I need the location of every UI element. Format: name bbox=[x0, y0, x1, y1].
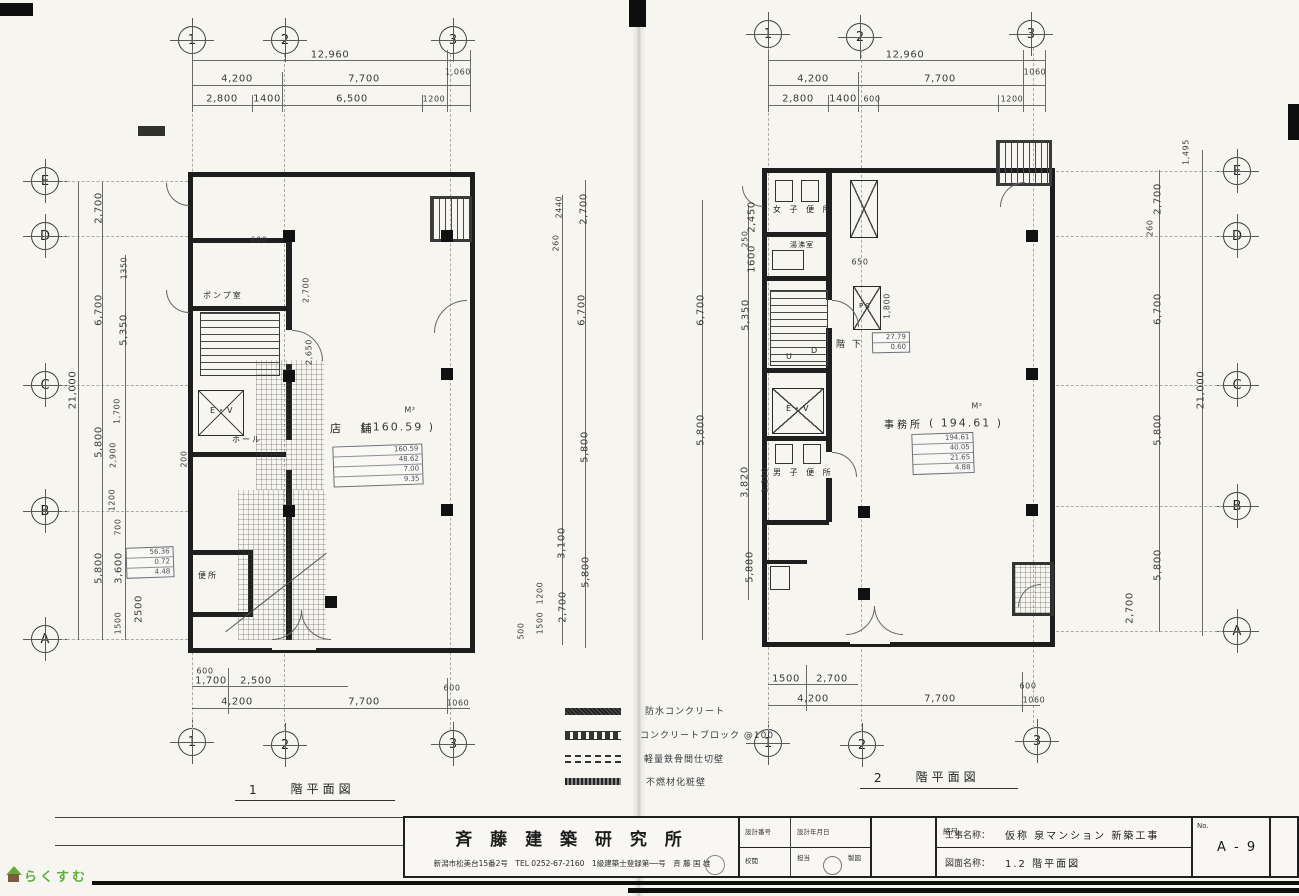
dim: 21,000 bbox=[68, 371, 79, 410]
tb-row-divider bbox=[935, 847, 1191, 848]
dim: 1400 bbox=[253, 94, 281, 105]
fixture bbox=[801, 180, 819, 202]
dim: 650 bbox=[851, 258, 868, 267]
grid-row-bubble: D bbox=[1223, 222, 1251, 250]
plan2-calc-note: 194.61 40.05 21.65 4.88 bbox=[911, 432, 974, 475]
plan1-room-hall: ホール bbox=[232, 434, 262, 445]
fixture bbox=[772, 250, 804, 270]
grid-col-bubble: 2 bbox=[271, 26, 299, 54]
dim: 2,900 bbox=[109, 442, 118, 468]
grid-col-bubble: 3 bbox=[1023, 727, 1051, 755]
dim: 5,800 bbox=[696, 414, 707, 446]
axis-line bbox=[62, 181, 188, 182]
dim: 5,800 bbox=[580, 431, 591, 463]
dim-line bbox=[125, 255, 126, 640]
tb-row-divider bbox=[738, 847, 870, 848]
column bbox=[441, 504, 453, 516]
plan1-room-pump: ポンプ室 bbox=[203, 290, 243, 301]
scan-bottom-line bbox=[92, 881, 1299, 885]
dim: 4,200 bbox=[221, 697, 253, 708]
column bbox=[325, 596, 337, 608]
column bbox=[1026, 368, 1038, 380]
plan2-caption: 2 階平面図 bbox=[860, 768, 1018, 789]
legend-label: コンクリートブロック @100 bbox=[640, 728, 774, 741]
grid-row-bubble: A bbox=[1223, 617, 1251, 645]
dim: 12,960 bbox=[886, 50, 925, 61]
dim: 1500 bbox=[536, 612, 545, 635]
scanned-floor-plan-sheet: らくすむ 1 2 3 1 2 3 1 2 3 1 2 3 E D C B A E… bbox=[0, 0, 1299, 896]
scan-mark bbox=[629, 0, 646, 27]
dim: 1200 bbox=[108, 489, 117, 512]
dim-line bbox=[192, 105, 470, 106]
calc-line: 4.48 bbox=[127, 567, 173, 578]
column bbox=[441, 230, 453, 242]
grid-col-bubble: 2 bbox=[846, 23, 874, 51]
charge-label: 担当 bbox=[797, 852, 810, 862]
dim: 7,700 bbox=[348, 74, 380, 85]
dim: 6,500 bbox=[336, 94, 368, 105]
column bbox=[1026, 230, 1038, 242]
dim: 600 bbox=[443, 684, 460, 693]
plan2-caption-no: 2 bbox=[874, 771, 886, 785]
grid-row-bubble: E bbox=[1223, 157, 1251, 185]
dim: 600 bbox=[250, 236, 267, 245]
dim: 1200 bbox=[1001, 95, 1024, 104]
dim: 5,350 bbox=[741, 299, 752, 331]
grid-row-bubble: C bbox=[1223, 371, 1251, 399]
legend-label: 不燃材化粧壁 bbox=[646, 775, 706, 788]
grid-row-bubble: D bbox=[31, 222, 59, 250]
column bbox=[1026, 504, 1038, 516]
legend-swatch-block bbox=[565, 731, 621, 740]
dim: 5,350 bbox=[119, 314, 130, 346]
dim: 1200 bbox=[423, 95, 446, 104]
tb-divider bbox=[1269, 818, 1271, 876]
dim: 2,700 bbox=[579, 193, 590, 225]
plan1-entrance-gap bbox=[272, 640, 316, 650]
dim: 1,495 bbox=[1182, 139, 1191, 165]
dim: 21,000 bbox=[1196, 371, 1207, 410]
grid-col-bubble: 1 bbox=[754, 20, 782, 48]
dim: 2,700 bbox=[302, 277, 311, 303]
grid-col-bubble: 2 bbox=[271, 731, 299, 759]
scan-mark bbox=[1288, 104, 1299, 140]
column bbox=[283, 230, 295, 242]
dim: 7,700 bbox=[924, 74, 956, 85]
dim: 2,700 bbox=[1125, 592, 1136, 624]
door-arc bbox=[166, 183, 189, 206]
dim: 3,820 bbox=[740, 466, 751, 498]
project-name: 仮称 泉マンション 新築工事 bbox=[1005, 827, 1159, 842]
plan2-roof-stair bbox=[996, 140, 1052, 186]
dim: 1060 bbox=[447, 699, 470, 708]
plan2-wall bbox=[767, 232, 829, 237]
dim-line bbox=[858, 72, 859, 112]
plan1-area-unit: M² bbox=[404, 406, 415, 415]
plan2-office-area: ( 194.61 ) bbox=[929, 417, 1003, 430]
dim: 1,700 bbox=[195, 676, 227, 687]
dim-line bbox=[562, 195, 563, 645]
dim: 5,800 bbox=[581, 556, 592, 588]
dim: 2,500 bbox=[240, 676, 272, 687]
dim: 2,800 bbox=[782, 94, 814, 105]
dim-line bbox=[768, 105, 1045, 106]
plan2-stairs bbox=[770, 290, 828, 366]
plan2-ps-label: PS bbox=[859, 302, 872, 310]
axis-line bbox=[1056, 171, 1222, 172]
dim: 5,800 bbox=[94, 426, 105, 458]
plan2-stair-note: 27.79 0.60 bbox=[872, 332, 910, 354]
grid-row-bubble: B bbox=[1223, 492, 1251, 520]
dim-line bbox=[282, 72, 283, 112]
grid-col-bubble: 3 bbox=[439, 26, 467, 54]
plan2-shaft bbox=[850, 180, 878, 238]
plan2-stair-up: U bbox=[786, 352, 794, 361]
dim-line bbox=[78, 182, 79, 640]
dim: 4,200 bbox=[797, 74, 829, 85]
plan2-wall bbox=[767, 520, 829, 525]
grid-row-bubble: B bbox=[31, 497, 59, 525]
design-no-label: 設計番号 bbox=[745, 826, 771, 836]
dim: 3,600 bbox=[114, 552, 125, 584]
firm-address: 新潟市松美台15番2号 TEL 0252-67-2160 1級建築士登録第──号… bbox=[409, 858, 735, 869]
fixture bbox=[803, 444, 821, 464]
title-strip-line bbox=[55, 845, 403, 846]
column bbox=[283, 370, 295, 382]
grid-col-bubble: 3 bbox=[1017, 20, 1045, 48]
dim: 600 bbox=[1019, 682, 1036, 691]
dim: 1600 bbox=[747, 245, 758, 273]
axis-line bbox=[1056, 506, 1222, 507]
legend-label: 軽量鉄骨間仕切壁 bbox=[644, 752, 724, 765]
dim: 2,700 bbox=[558, 591, 569, 623]
dim: 600 bbox=[196, 667, 213, 676]
plan2-room-ev: E・V bbox=[786, 403, 811, 414]
drawing-name: 1.2 階平面図 bbox=[1005, 855, 1080, 870]
scan-bottom-line bbox=[628, 888, 1299, 893]
calc-line: 27.79 bbox=[873, 333, 909, 344]
plan1-room-ev: E・V bbox=[210, 405, 235, 416]
dim: 2,700 bbox=[1153, 183, 1164, 215]
scan-mark bbox=[0, 3, 33, 16]
legend-label: 防水コンクリート bbox=[645, 704, 725, 717]
title-block: 斉 藤 建 築 研 究 所 新潟市松美台15番2号 TEL 0252-67-21… bbox=[403, 816, 1299, 878]
dim-line bbox=[470, 50, 471, 112]
dim: 2,450 bbox=[747, 201, 758, 233]
dim: 3,100 bbox=[557, 527, 568, 559]
dim-line bbox=[768, 50, 769, 112]
plan1-shop-area: ( 160.59 ) bbox=[361, 421, 435, 434]
column bbox=[441, 368, 453, 380]
plan2-caption-text: 階平面図 bbox=[916, 768, 980, 785]
dim: 1350 bbox=[120, 257, 129, 280]
plan2-stair-down: D bbox=[811, 346, 819, 355]
dim: 1060 bbox=[1024, 68, 1047, 77]
title-strip-line bbox=[55, 817, 403, 818]
dim-line bbox=[1022, 672, 1023, 712]
dim: 4,200 bbox=[797, 694, 829, 705]
tb-divider bbox=[1191, 818, 1193, 876]
dim: 1,700 bbox=[113, 398, 122, 424]
door-arc bbox=[166, 290, 189, 313]
watermark-text: らくすむ bbox=[24, 866, 88, 885]
column bbox=[858, 588, 870, 600]
axis-line bbox=[1056, 236, 1222, 237]
dim: 7,700 bbox=[348, 697, 380, 708]
column bbox=[858, 506, 870, 518]
plan1-caption-text: 階平面図 bbox=[291, 780, 355, 797]
drawing-label: 図面名称： bbox=[945, 856, 990, 869]
dim: 5,880 bbox=[745, 551, 756, 583]
grid-col-bubble: 3 bbox=[439, 730, 467, 758]
review-label: 校閲 bbox=[745, 855, 758, 865]
dim: 700 bbox=[114, 518, 123, 535]
dim: 2500 bbox=[134, 595, 145, 623]
legend-swatch-partition bbox=[565, 755, 621, 763]
dim: 12,960 bbox=[311, 50, 350, 61]
plan1-caption: 1 階平面図 bbox=[235, 780, 395, 801]
tb-divider bbox=[870, 818, 872, 876]
dim: 6,700 bbox=[577, 294, 588, 326]
dim: 6,700 bbox=[696, 294, 707, 326]
approval-stamp bbox=[823, 856, 842, 875]
dim: 1500 bbox=[114, 612, 123, 635]
dim: 260 bbox=[552, 234, 561, 251]
axis-line bbox=[1056, 631, 1222, 632]
dim: 1,800 bbox=[883, 293, 892, 319]
grid-col-bubble: 2 bbox=[848, 731, 876, 759]
dim: 2,800 bbox=[206, 94, 238, 105]
dim-line bbox=[192, 708, 470, 709]
dim: 1,280 bbox=[761, 467, 770, 493]
plan2-room-women-wc: 女 子 便 所 bbox=[773, 204, 834, 215]
fixture bbox=[775, 444, 793, 464]
plan1-caption-no: 1 bbox=[249, 783, 261, 797]
dim: 7,700 bbox=[924, 694, 956, 705]
dim: 5,800 bbox=[94, 552, 105, 584]
grid-row-bubble: A bbox=[31, 625, 59, 653]
plan2-room-men-wc: 男 子 便 所 bbox=[773, 467, 834, 478]
legend-swatch-concrete bbox=[565, 708, 621, 715]
tb-cell-divider bbox=[790, 818, 791, 876]
dim-line bbox=[768, 85, 1045, 86]
dim-line bbox=[768, 705, 1040, 706]
sheet-no-label: No. bbox=[1197, 822, 1209, 830]
dim: 1400 bbox=[829, 94, 857, 105]
dim: 1200 bbox=[536, 582, 545, 605]
plan2-wall bbox=[767, 368, 829, 373]
plan2-entrance-gap bbox=[850, 634, 890, 644]
dim: 6,700 bbox=[94, 294, 105, 326]
dim: 600 bbox=[863, 95, 880, 104]
plan2-area-unit: M² bbox=[971, 402, 982, 411]
design-date-label: 設計年月日 bbox=[797, 826, 830, 836]
dim: 1500 bbox=[772, 674, 800, 685]
plan2-room-kitchen: 湯沸室 bbox=[790, 240, 814, 250]
plan1-side-calc-note: 56.36 0.72 4.48 bbox=[125, 546, 174, 579]
dim-line bbox=[1045, 50, 1046, 112]
calc-line: 0.60 bbox=[873, 343, 909, 353]
dim: 5,800 bbox=[1153, 549, 1164, 581]
column bbox=[283, 505, 295, 517]
grid-row-bubble: C bbox=[31, 371, 59, 399]
dim: 500 bbox=[517, 622, 526, 639]
plan2-room-office: 事務所 bbox=[884, 416, 923, 431]
axis-line bbox=[62, 236, 188, 237]
firm-seal bbox=[705, 855, 725, 875]
dim-line bbox=[998, 95, 999, 112]
plan2-below-label: 階 下 bbox=[836, 337, 863, 350]
dim-line bbox=[192, 50, 193, 112]
draft-label: 製図 bbox=[848, 852, 861, 862]
project-label: 工事名称： bbox=[945, 828, 990, 841]
legend-swatch-finish bbox=[565, 778, 621, 785]
dim-line bbox=[447, 50, 448, 112]
dim: 2,700 bbox=[94, 192, 105, 224]
dim: 2440 bbox=[555, 196, 564, 219]
plan2-wall bbox=[767, 436, 829, 441]
dim: 6,700 bbox=[1153, 293, 1164, 325]
plan1-calc-note: 160.59 48.62 7.00 9.35 bbox=[332, 443, 423, 487]
scan-mark bbox=[138, 126, 165, 136]
plan2-wall bbox=[767, 560, 807, 564]
plan1-room-toilet: 便所 bbox=[198, 570, 218, 581]
dim: 260 bbox=[1146, 219, 1155, 236]
calc-line: 9.35 bbox=[334, 474, 422, 486]
dim: 200 bbox=[180, 450, 189, 467]
watermark-house-body bbox=[8, 874, 19, 882]
sheet-no: A - 9 bbox=[1217, 840, 1257, 855]
dim: 2,700 bbox=[816, 674, 848, 685]
plan2-wall bbox=[767, 276, 829, 281]
fixture bbox=[775, 180, 793, 202]
plan1-wall bbox=[193, 238, 286, 243]
dim-line bbox=[192, 85, 470, 86]
plan1-wall bbox=[193, 306, 286, 311]
dim: 1060 bbox=[1023, 696, 1046, 705]
dim: 2,650 bbox=[305, 339, 314, 365]
firm-name: 斉 藤 建 築 研 究 所 bbox=[405, 825, 738, 850]
dim: 1,060 bbox=[445, 68, 471, 77]
grid-col-bubble: 1 bbox=[178, 728, 206, 756]
calc-line: 4.88 bbox=[913, 463, 973, 474]
dim: 5,800 bbox=[1153, 414, 1164, 446]
fixture bbox=[770, 566, 790, 590]
grid-row-bubble: E bbox=[31, 167, 59, 195]
dim: 4,200 bbox=[221, 74, 253, 85]
